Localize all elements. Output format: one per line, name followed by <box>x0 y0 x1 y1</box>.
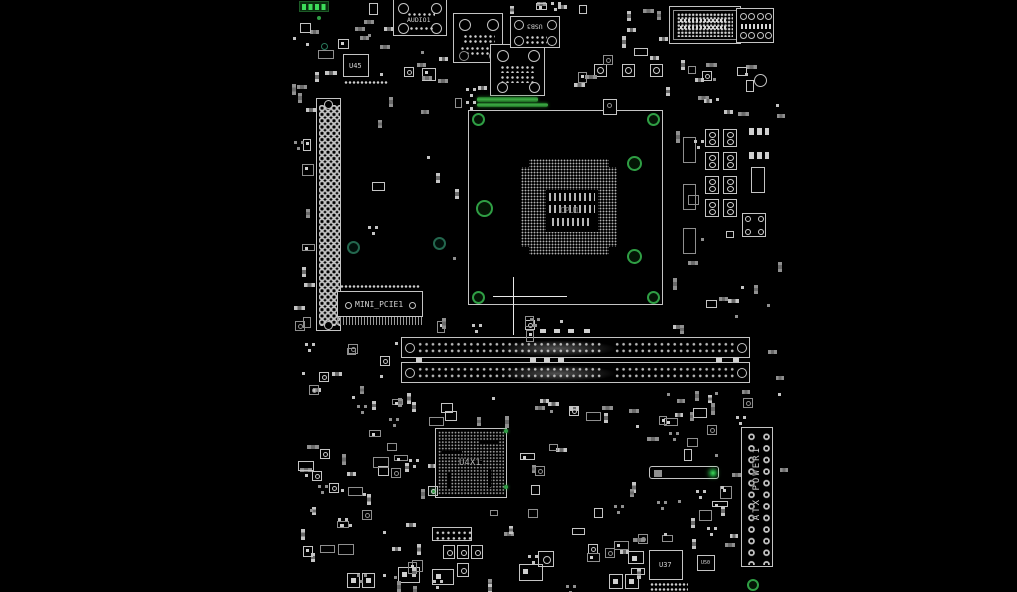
pcb-layout-canvas[interactable]: AUDIO1 USB3 <box>0 0 1017 592</box>
component-footprint <box>713 78 716 81</box>
component-footprint <box>695 391 699 401</box>
pin-hole-rows <box>614 366 736 381</box>
dimm-slot-2[interactable] <box>401 362 750 383</box>
component-footprint <box>417 544 421 555</box>
pin-hole <box>765 13 772 20</box>
component-footprint <box>605 548 615 558</box>
component-footprint <box>338 544 353 556</box>
component-footprint <box>421 51 424 54</box>
component-footprint <box>768 350 777 354</box>
chipset-label: U4X1 <box>459 459 481 468</box>
pin-holes <box>500 65 536 73</box>
component-footprint <box>303 139 312 151</box>
component-footprint <box>369 3 377 16</box>
pad-dot <box>395 402 398 405</box>
component-footprint <box>510 6 514 14</box>
pad-circle <box>727 139 734 145</box>
pad-circle <box>709 155 716 161</box>
cpu-socket-label: CPU1 <box>560 207 579 215</box>
transistor-footprint <box>457 545 469 559</box>
component-footprint <box>302 372 305 375</box>
silk-text-band <box>680 26 728 29</box>
u37-pads <box>650 582 688 591</box>
u45-chip[interactable]: U45 <box>343 54 369 77</box>
component-footprint <box>292 84 296 95</box>
audio-connector[interactable]: AUDIO1 <box>393 0 447 36</box>
pin-hole <box>757 32 764 39</box>
slot-end-hole <box>737 368 747 378</box>
component-footprint <box>579 5 587 14</box>
u37-chip[interactable]: U37 <box>649 550 683 580</box>
component-footprint <box>528 509 538 519</box>
component-footprint <box>743 398 753 408</box>
component-footprint <box>706 300 717 308</box>
component-footprint <box>643 9 655 13</box>
component-footprint <box>699 510 712 522</box>
component-footprint <box>778 393 781 396</box>
choke-pin <box>745 216 751 222</box>
component-footprint <box>387 443 397 452</box>
choke-pads <box>749 128 769 135</box>
component-footprint <box>666 87 670 96</box>
component-footprint <box>332 372 342 376</box>
component-footprint <box>409 459 419 468</box>
mosfet-footprint[interactable] <box>723 176 737 194</box>
mount-hole <box>497 82 508 93</box>
socket-mount-hole <box>476 200 493 217</box>
routing-channel <box>442 451 462 454</box>
component-footprint <box>738 112 749 116</box>
component-footprint <box>725 543 735 547</box>
audio-connector-label: AUDIO1 <box>407 17 430 24</box>
pad-circle <box>709 202 716 208</box>
pad-dot <box>617 544 620 547</box>
transistor-footprint <box>443 545 455 559</box>
grid-notch <box>521 247 529 255</box>
component-footprint <box>526 330 534 343</box>
u45-pads <box>344 80 388 86</box>
slot-end-hole <box>737 343 747 353</box>
solder-pad <box>540 329 546 333</box>
mosfet-footprint[interactable] <box>723 199 737 217</box>
pin-header-2x7[interactable] <box>432 527 472 541</box>
highlight-dot <box>504 429 508 433</box>
component-footprint <box>441 403 454 413</box>
component-footprint <box>315 72 319 82</box>
component-footprint <box>357 574 367 583</box>
component-footprint <box>696 490 706 499</box>
component-footprint <box>472 324 482 333</box>
component-footprint <box>664 533 667 536</box>
pad-circle <box>709 179 716 185</box>
component-footprint <box>676 131 680 143</box>
component-footprint <box>428 486 438 496</box>
component-footprint <box>585 75 597 79</box>
inductor-outline <box>751 167 765 193</box>
component-footprint <box>384 27 395 31</box>
component-footprint <box>300 23 311 34</box>
capacitor-can <box>622 64 635 77</box>
choke-footprint <box>742 213 766 237</box>
mount-hole <box>324 321 333 330</box>
pad-circle <box>709 186 716 192</box>
mount-hole <box>497 50 509 62</box>
socket-mount-hole <box>647 113 660 126</box>
component-footprint <box>372 401 376 410</box>
component-footprint <box>302 164 314 176</box>
component-footprint <box>427 156 430 159</box>
via-ring <box>433 237 446 250</box>
component-footprint <box>633 538 644 542</box>
pad-circle <box>709 139 716 145</box>
component-footprint <box>380 45 390 49</box>
pad-circle <box>727 202 734 208</box>
component-footprint <box>453 257 456 260</box>
component-footprint <box>735 315 738 318</box>
atx-power-label: ATX POWER1 <box>753 446 762 520</box>
component-footprint <box>360 36 370 40</box>
component-footprint <box>364 20 374 24</box>
highlight-bar <box>477 97 538 102</box>
mount-hole <box>459 19 471 31</box>
component-footprint <box>535 406 545 410</box>
component-footprint <box>692 539 696 549</box>
cpu-socket[interactable]: CPU1 <box>468 110 663 305</box>
mount-hole <box>409 302 416 309</box>
mount-hole <box>345 302 352 309</box>
mount-hole <box>529 82 540 93</box>
pad-dot <box>723 489 726 492</box>
component-footprint <box>505 416 509 428</box>
solder-pad <box>716 358 722 362</box>
component-footprint <box>306 43 309 46</box>
pad-dot <box>523 456 526 459</box>
dimm-slot-1[interactable] <box>401 337 750 358</box>
component-footprint <box>373 457 389 467</box>
pad-circle <box>727 155 734 161</box>
component-footprint <box>711 403 715 414</box>
component-footprint <box>392 399 404 405</box>
mosfet-footprint[interactable] <box>705 199 719 217</box>
pad-dot <box>425 71 428 74</box>
component-footprint <box>310 30 319 34</box>
header-pins <box>302 4 327 10</box>
component-footprint <box>604 413 608 423</box>
component-footprint <box>349 524 352 527</box>
lan-connector[interactable] <box>669 6 741 44</box>
mount-hole <box>459 51 469 61</box>
pin-pad <box>629 579 634 584</box>
pin-hole <box>765 32 772 39</box>
component-footprint <box>630 489 634 497</box>
component-footprint <box>509 526 513 534</box>
pin-holes <box>525 35 547 45</box>
u37-label: U37 <box>659 562 672 569</box>
pad-dot <box>581 75 584 78</box>
pad-dot <box>539 6 542 9</box>
pin-pad <box>632 556 637 561</box>
pad-circle <box>461 568 467 574</box>
component-footprint <box>355 27 365 31</box>
component-footprint <box>347 348 356 355</box>
cap-pad-row <box>552 218 590 226</box>
component-footprint <box>530 318 540 327</box>
highlight-dot <box>317 16 321 20</box>
component-footprint <box>392 547 402 551</box>
mosfet-footprint[interactable] <box>723 152 737 170</box>
solder-pad <box>733 358 739 362</box>
silk-text-band <box>680 19 728 22</box>
component-footprint <box>306 108 316 112</box>
chipset-bga[interactable]: U4X1 <box>435 428 507 498</box>
component-footprint <box>360 386 364 395</box>
choke-pin <box>758 216 764 222</box>
component-footprint <box>777 114 785 118</box>
pad-dot <box>662 419 665 422</box>
component-footprint <box>776 376 784 380</box>
mini-pcie-pads <box>340 284 420 290</box>
solder-pad <box>554 329 560 333</box>
mount-hole <box>487 19 499 31</box>
usb3-connector[interactable]: USB3 <box>510 16 560 48</box>
pad-dot <box>306 549 309 552</box>
top-ic[interactable] <box>603 99 617 115</box>
u50-chip[interactable]: U50 <box>697 555 715 571</box>
mosfet-footprint[interactable] <box>705 129 719 147</box>
usb3-connector-label: USB3 <box>527 23 543 30</box>
component-footprint <box>560 320 563 323</box>
component-footprint <box>394 576 397 579</box>
component-footprint <box>627 11 631 21</box>
component-footprint <box>732 473 741 477</box>
component-footprint <box>303 546 314 557</box>
mosfet-footprint[interactable] <box>723 129 737 147</box>
choke-pin <box>758 229 764 235</box>
component-footprint <box>421 489 425 499</box>
pad-dot <box>341 42 344 45</box>
mini-pcie-label: MINI_PCIE1 <box>355 301 403 309</box>
component-footprint <box>707 527 717 536</box>
component-footprint <box>659 416 668 425</box>
green-power-header[interactable] <box>299 1 329 12</box>
component-footprint <box>312 471 322 481</box>
can-circle <box>653 67 660 74</box>
component-footprint <box>380 73 383 76</box>
bottom-connector[interactable] <box>609 574 623 589</box>
component-footprint <box>629 409 639 413</box>
transistor-footprint <box>471 545 483 559</box>
component-footprint <box>688 195 699 205</box>
routing-channel <box>488 469 491 487</box>
component-footprint <box>455 189 459 199</box>
mount-hole <box>547 20 557 30</box>
component-footprint <box>569 406 579 416</box>
sot-outline <box>683 228 696 254</box>
component-footprint <box>550 410 553 413</box>
component-footprint <box>372 182 385 191</box>
pad-circle <box>727 132 734 138</box>
pad-circle <box>709 162 716 168</box>
component-footprint <box>602 406 614 410</box>
component-footprint <box>436 173 440 183</box>
socket-cavity: CPU1 <box>546 190 598 232</box>
component-footprint <box>707 425 717 435</box>
mount-hole <box>398 23 409 34</box>
component-footprint <box>614 505 624 514</box>
component-footprint <box>684 449 692 461</box>
component-footprint <box>780 468 788 472</box>
socket-mount-hole <box>472 291 485 304</box>
mosfet-footprint[interactable] <box>705 176 719 194</box>
silk-smudge <box>497 340 617 357</box>
component-footprint <box>477 417 481 426</box>
component-footprint <box>397 581 401 592</box>
bottom-connector[interactable] <box>628 551 644 564</box>
mount-hole <box>514 20 524 30</box>
component-footprint <box>455 98 462 109</box>
solder-pad <box>584 329 590 333</box>
mini-pcie-fingers <box>337 317 423 325</box>
solder-pad <box>416 358 422 362</box>
component-footprint <box>736 416 746 425</box>
component-footprint <box>712 501 728 507</box>
pad-dot <box>305 167 308 170</box>
component-footprint <box>549 444 558 452</box>
atx-power-connector[interactable]: ATX POWER1 <box>741 427 773 567</box>
pin-holes <box>463 34 495 43</box>
component-footprint <box>389 418 399 427</box>
pad-dot <box>715 504 718 507</box>
component-footprint <box>320 449 330 459</box>
component-footprint <box>341 489 344 492</box>
component-footprint <box>726 231 734 238</box>
pin-hole <box>748 13 755 20</box>
highlight-dot <box>709 469 717 477</box>
component-footprint <box>572 528 585 534</box>
component-footprint <box>407 393 411 403</box>
component-footprint <box>438 79 448 83</box>
pad-dot <box>340 524 343 527</box>
component-footprint <box>594 508 603 518</box>
component-footprint <box>719 297 729 301</box>
component-footprint <box>318 485 328 494</box>
cap-pad-row <box>549 193 595 201</box>
pin-pad <box>654 470 662 477</box>
component-footprint <box>730 534 738 538</box>
pad-dot <box>667 421 670 424</box>
component-footprint <box>701 238 704 241</box>
component-footprint <box>294 141 304 150</box>
pad-circle <box>727 209 734 215</box>
component-footprint <box>695 78 704 82</box>
component-footprint <box>378 120 382 128</box>
mount-hole <box>754 74 767 87</box>
component-footprint <box>367 494 371 504</box>
component-footprint <box>320 545 335 553</box>
component-footprint <box>298 93 302 103</box>
component-footprint <box>659 37 669 41</box>
component-footprint <box>650 56 659 60</box>
pin-1-dot <box>607 103 612 108</box>
component-footprint <box>678 500 681 503</box>
component-footprint <box>535 466 545 476</box>
component-footprint <box>631 568 645 575</box>
mini-pcie-connector[interactable]: MINI_PCIE1 <box>337 291 423 317</box>
component-footprint <box>378 466 389 476</box>
component-footprint <box>362 510 372 520</box>
component-footprint <box>578 72 587 83</box>
component-footprint <box>357 405 367 414</box>
component-footprint <box>329 483 339 493</box>
component-footprint <box>380 356 390 366</box>
pin-pad <box>351 578 356 583</box>
solder-pad <box>544 358 550 362</box>
component-footprint <box>413 586 417 592</box>
slot-end-hole <box>405 343 415 353</box>
component-footprint <box>657 501 667 510</box>
component-footprint <box>421 110 429 114</box>
pad-dot <box>397 458 400 461</box>
atx12v-connector[interactable] <box>736 8 774 43</box>
capacitor-can <box>650 64 663 77</box>
choke-pin <box>745 229 751 235</box>
component-footprint <box>309 385 319 395</box>
pin-hole <box>757 13 764 20</box>
mount-hole <box>547 36 557 46</box>
component-footprint <box>405 463 409 473</box>
component-footprint <box>704 99 712 103</box>
component-footprint <box>466 88 476 97</box>
component-footprint <box>295 321 305 331</box>
component-footprint <box>337 521 349 528</box>
component-footprint <box>307 445 318 449</box>
component-footprint <box>688 261 699 265</box>
ps2-usb-connector-lower[interactable] <box>490 44 545 96</box>
pin-pad <box>366 578 371 583</box>
crosshair-cursor <box>493 296 567 297</box>
mosfet-footprint[interactable] <box>705 152 719 170</box>
component-footprint <box>603 55 613 65</box>
solder-pad <box>558 358 564 362</box>
component-footprint <box>368 226 378 235</box>
silk-text-band <box>741 24 771 29</box>
component-footprint <box>627 28 636 32</box>
component-footprint <box>647 437 659 441</box>
component-footprint <box>369 430 381 436</box>
component-footprint <box>778 262 782 272</box>
pad-circle <box>727 162 734 168</box>
pad-circle <box>461 550 467 556</box>
routing-channel <box>448 473 451 489</box>
pin-hole <box>748 32 755 39</box>
pin-hole-rows <box>614 341 736 356</box>
component-footprint <box>767 304 770 307</box>
bottom-connector[interactable] <box>519 564 543 581</box>
pad-circle <box>727 186 734 192</box>
jumper-header[interactable] <box>649 466 719 479</box>
pad-dot <box>529 333 532 336</box>
component-footprint <box>776 104 779 107</box>
pad-circle <box>475 550 481 556</box>
component-footprint <box>389 97 393 107</box>
pin-holes <box>677 13 733 37</box>
component-footprint <box>310 509 313 512</box>
component-footprint <box>754 285 758 294</box>
component-footprint <box>531 485 539 495</box>
pad-circle <box>709 132 716 138</box>
component-footprint <box>716 98 719 101</box>
component-footprint <box>520 453 535 460</box>
